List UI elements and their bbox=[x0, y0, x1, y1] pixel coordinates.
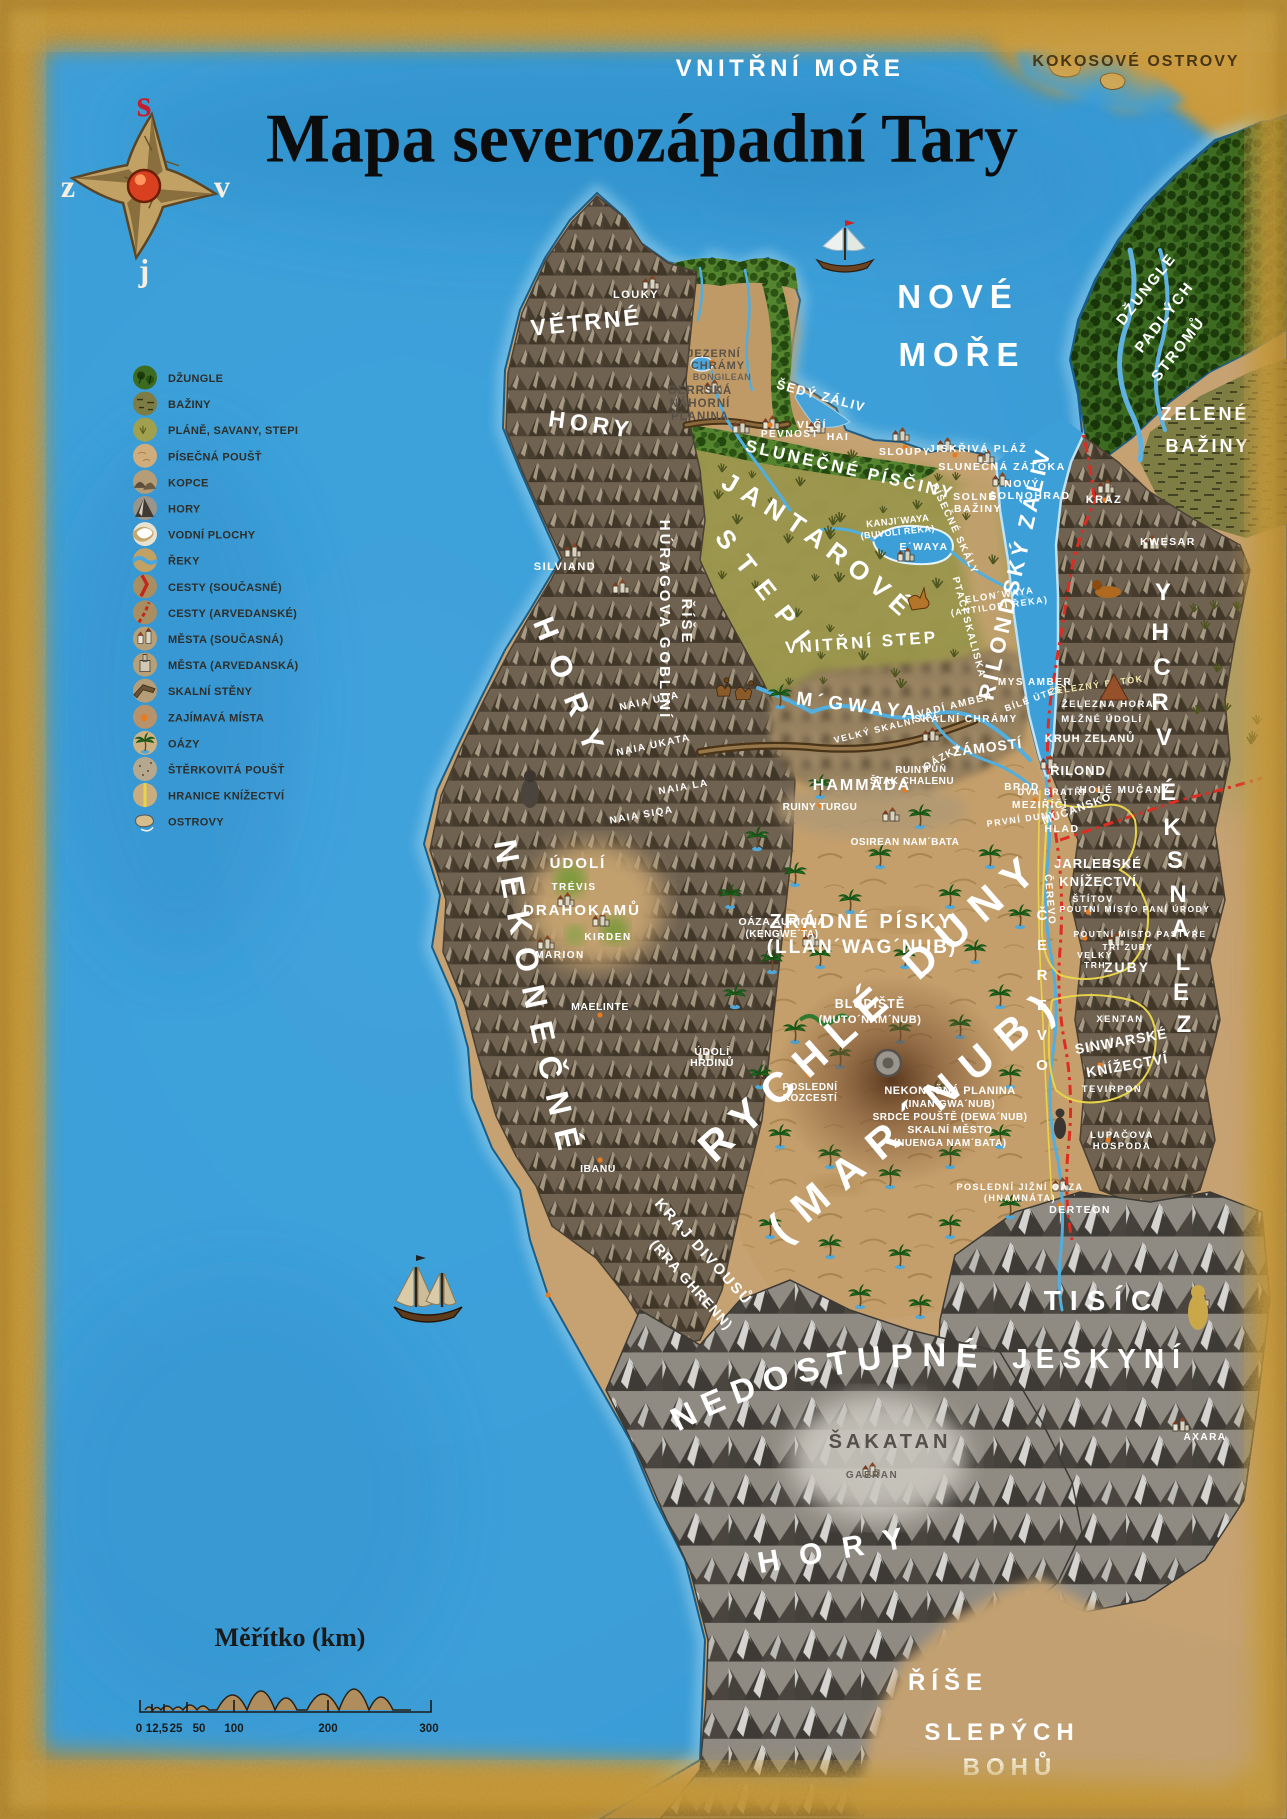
svg-text:ÚDOLÍ: ÚDOLÍ bbox=[550, 854, 607, 872]
svg-text:PEVNOST: PEVNOST bbox=[761, 429, 819, 440]
svg-text:ŘÍŠE: ŘÍŠE bbox=[678, 598, 696, 645]
svg-text:SLEPÝCH: SLEPÝCH bbox=[924, 1718, 1079, 1746]
svg-text:OÁZY: OÁZY bbox=[168, 737, 200, 750]
svg-text:ROZCESTÍ: ROZCESTÍ bbox=[783, 1091, 838, 1104]
svg-text:200: 200 bbox=[318, 1723, 337, 1735]
svg-text:R: R bbox=[1151, 689, 1168, 716]
svg-text:ŠAKATAN: ŠAKATAN bbox=[829, 1429, 952, 1453]
svg-text:POUTNÍ MÍSTO PANÍ ÚRODY: POUTNÍ MÍSTO PANÍ ÚRODY bbox=[1060, 903, 1211, 914]
svg-text:BAŽINY: BAŽINY bbox=[168, 398, 211, 411]
svg-text:Měřítko (km): Měřítko (km) bbox=[215, 1623, 366, 1652]
svg-text:JISKŘIVÁ PLÁŽ: JISKŘIVÁ PLÁŽ bbox=[929, 442, 1027, 455]
svg-text:E: E bbox=[1037, 997, 1047, 1014]
svg-text:É: É bbox=[1160, 778, 1176, 806]
svg-text:LUPAČOVA: LUPAČOVA bbox=[1090, 1129, 1154, 1141]
svg-text:SOLNOHRAD: SOLNOHRAD bbox=[989, 490, 1070, 502]
svg-text:ŘÍŠE: ŘÍŠE bbox=[908, 1668, 988, 1696]
svg-text:KRUH ZELANŮ: KRUH ZELANŮ bbox=[1045, 731, 1135, 745]
svg-text:KIRDEN: KIRDEN bbox=[584, 932, 631, 943]
svg-text:KNÍŽECTVÍ: KNÍŽECTVÍ bbox=[1059, 874, 1137, 889]
svg-text:300: 300 bbox=[419, 1723, 438, 1735]
svg-text:S: S bbox=[1167, 847, 1183, 874]
svg-text:R: R bbox=[1037, 967, 1048, 984]
svg-text:KWESAR: KWESAR bbox=[1140, 536, 1196, 548]
svg-text:HOLÉ MUČANY: HOLÉ MUČANY bbox=[1080, 783, 1171, 796]
svg-text:XENTAN: XENTAN bbox=[1096, 1014, 1143, 1025]
svg-text:NOVÉ: NOVÉ bbox=[897, 278, 1019, 315]
svg-text:TRÉVIS: TRÉVIS bbox=[551, 880, 596, 893]
svg-text:100: 100 bbox=[224, 1723, 243, 1735]
svg-text:A: A bbox=[1171, 915, 1188, 942]
svg-text:DERTEON: DERTEON bbox=[1049, 1204, 1111, 1216]
svg-text:BAŽINY: BAŽINY bbox=[954, 502, 1002, 515]
svg-text:(KENGWE´TA): (KENGWE´TA) bbox=[745, 929, 818, 940]
svg-text:OSTROVY: OSTROVY bbox=[168, 817, 224, 829]
svg-text:DRAHOKAMŮ: DRAHOKAMŮ bbox=[523, 900, 641, 919]
svg-text:Mapa severozápadní Tary: Mapa severozápadní Tary bbox=[266, 99, 1018, 177]
svg-text:JARLEBSKÉ: JARLEBSKÉ bbox=[1054, 856, 1142, 871]
svg-text:MAELINTE: MAELINTE bbox=[571, 1001, 629, 1013]
svg-text:PLANINA: PLANINA bbox=[671, 411, 729, 423]
svg-text:Y: Y bbox=[1155, 579, 1171, 606]
svg-text:MARION: MARION bbox=[535, 950, 585, 961]
svg-text:OÁZA AURIONA: OÁZA AURIONA bbox=[739, 915, 826, 928]
svg-text:NEKONEČNÁ PLANINA: NEKONEČNÁ PLANINA bbox=[884, 1084, 1015, 1097]
svg-text:z: z bbox=[61, 168, 75, 204]
svg-text:(MUTO´NAM´NUB): (MUTO´NAM´NUB) bbox=[819, 1014, 922, 1026]
svg-text:POSLEDNÍ: POSLEDNÍ bbox=[782, 1080, 837, 1093]
svg-text:L: L bbox=[1176, 949, 1191, 976]
svg-text:s: s bbox=[137, 83, 152, 125]
svg-text:LOUKY: LOUKY bbox=[613, 289, 659, 301]
svg-text:ZELENÉ: ZELENÉ bbox=[1160, 403, 1249, 424]
svg-text:IBANU: IBANU bbox=[580, 1163, 616, 1175]
svg-text:AXARA: AXARA bbox=[1183, 1432, 1226, 1443]
svg-text:HRANICE KNÍŽECTVÍ: HRANICE KNÍŽECTVÍ bbox=[168, 790, 285, 803]
svg-text:SLOUPY: SLOUPY bbox=[879, 446, 931, 458]
svg-text:ZAJÍMAVÁ MÍSTA: ZAJÍMAVÁ MÍSTA bbox=[168, 711, 264, 724]
svg-text:ŠTĚRKOVITÁ POUŠŤ: ŠTĚRKOVITÁ POUŠŤ bbox=[168, 764, 285, 777]
svg-text:MĚSTA (ARVEDANSKÁ): MĚSTA (ARVEDANSKÁ) bbox=[168, 659, 299, 672]
svg-text:E: E bbox=[1173, 979, 1189, 1006]
svg-text:HÚRAGOVA GOBLINÍ: HÚRAGOVA GOBLINÍ bbox=[656, 520, 674, 721]
svg-text:v: v bbox=[214, 168, 230, 204]
svg-text:ŠTAK CHALENU: ŠTAK CHALENU bbox=[870, 774, 954, 787]
svg-text:TRH: TRH bbox=[1084, 960, 1106, 970]
svg-text:HLAD: HLAD bbox=[1044, 823, 1079, 835]
svg-text:BLUDIŠTĚ: BLUDIŠTĚ bbox=[835, 996, 906, 1011]
svg-text:SKALNÍ STĚNY: SKALNÍ STĚNY bbox=[168, 685, 253, 698]
svg-text:BONGILEAN: BONGILEAN bbox=[693, 372, 752, 382]
svg-text:(HNAMNÁTA): (HNAMNÁTA) bbox=[984, 1193, 1056, 1203]
svg-text:HAI: HAI bbox=[827, 431, 850, 443]
svg-text:RUINY TURGU: RUINY TURGU bbox=[783, 802, 858, 813]
svg-text:BAŽINY: BAŽINY bbox=[1166, 435, 1251, 456]
svg-text:CESTY (ARVEDANSKÉ): CESTY (ARVEDANSKÉ) bbox=[168, 607, 297, 620]
svg-text:V: V bbox=[1156, 724, 1172, 751]
svg-text:VNITŘNÍ MOŘE: VNITŘNÍ MOŘE bbox=[676, 54, 905, 82]
svg-text:HOSPODA: HOSPODA bbox=[1093, 1141, 1152, 1152]
svg-text:Č: Č bbox=[1037, 906, 1048, 924]
svg-text:MLŽNÉ ÚDOLÍ: MLŽNÉ ÚDOLÍ bbox=[1061, 713, 1142, 725]
svg-text:12,5: 12,5 bbox=[146, 1723, 169, 1735]
svg-text:N: N bbox=[1169, 881, 1186, 908]
svg-text:j: j bbox=[138, 252, 150, 288]
svg-text:NÁHORNÍ: NÁHORNÍ bbox=[670, 397, 731, 410]
svg-text:SLUNEČNÁ ZÁTOKA: SLUNEČNÁ ZÁTOKA bbox=[938, 460, 1065, 473]
svg-text:SRDCE POUŠTĚ (DEWA´NUB): SRDCE POUŠTĚ (DEWA´NUB) bbox=[873, 1110, 1028, 1123]
svg-text:TUŇ: TUŇ bbox=[925, 763, 948, 774]
svg-text:MĚSTA (SOUČASNÁ): MĚSTA (SOUČASNÁ) bbox=[168, 633, 283, 646]
svg-text:JEZERNÍ: JEZERNÍ bbox=[687, 347, 740, 360]
svg-text:E´WAYA: E´WAYA bbox=[899, 541, 948, 553]
svg-text:MOŘE: MOŘE bbox=[899, 336, 1026, 373]
svg-text:DŽUNGLE: DŽUNGLE bbox=[168, 372, 223, 385]
svg-text:PLÁNĚ, SAVANY, STEPI: PLÁNĚ, SAVANY, STEPI bbox=[168, 424, 298, 437]
svg-text:CHRÁMY: CHRÁMY bbox=[691, 359, 745, 372]
svg-text:OSIREAN NAM´BATA: OSIREAN NAM´BATA bbox=[851, 837, 960, 848]
svg-text:CESTY (SOUČASNÉ): CESTY (SOUČASNÉ) bbox=[168, 581, 282, 594]
svg-text:ZUBY: ZUBY bbox=[1104, 959, 1150, 975]
svg-text:O: O bbox=[1036, 1057, 1048, 1074]
svg-text:NOVÝ: NOVÝ bbox=[1004, 477, 1040, 490]
svg-text:V: V bbox=[1037, 1027, 1047, 1044]
svg-text:POSLEDNÍ JIŽNÍ OÁZA: POSLEDNÍ JIŽNÍ OÁZA bbox=[956, 1181, 1083, 1192]
svg-text:JESKYNÍ: JESKYNÍ bbox=[1012, 1343, 1188, 1374]
svg-text:Z: Z bbox=[1177, 1011, 1192, 1038]
svg-text:ŠTÍTOV: ŠTÍTOV bbox=[1072, 893, 1113, 904]
svg-text:E: E bbox=[1037, 937, 1047, 954]
svg-text:ŘEKY: ŘEKY bbox=[168, 555, 200, 568]
svg-text:H: H bbox=[1151, 619, 1168, 646]
svg-text:SILVIAND: SILVIAND bbox=[534, 561, 597, 573]
svg-text:C: C bbox=[1153, 654, 1170, 681]
svg-text:PÍSEČNÁ POUŠŤ: PÍSEČNÁ POUŠŤ bbox=[168, 450, 262, 463]
svg-text:KOPCE: KOPCE bbox=[168, 477, 209, 489]
svg-text:SKALNÍ MĚSTO: SKALNÍ MĚSTO bbox=[907, 1123, 992, 1136]
svg-text:DVA BRATŘI: DVA BRATŘI bbox=[1018, 786, 1087, 797]
svg-text:GAERAN: GAERAN bbox=[846, 1470, 898, 1481]
svg-text:HRDINŮ: HRDINŮ bbox=[690, 1055, 734, 1069]
svg-text:HORY: HORY bbox=[168, 504, 201, 516]
svg-text:TISÍC: TISÍC bbox=[1044, 1285, 1161, 1316]
svg-text:KOKOSOVÉ OSTROVY: KOKOSOVÉ OSTROVY bbox=[1032, 51, 1239, 70]
svg-text:KRAZ: KRAZ bbox=[1086, 494, 1123, 506]
svg-text:VODNÍ PLOCHY: VODNÍ PLOCHY bbox=[168, 529, 256, 542]
svg-text:0: 0 bbox=[136, 1723, 142, 1735]
svg-text:SOLNÉ: SOLNÉ bbox=[953, 490, 997, 503]
svg-text:RILOND: RILOND bbox=[1050, 763, 1106, 778]
svg-text:K: K bbox=[1163, 814, 1181, 841]
svg-text:(INAN´GWA´NUB): (INAN´GWA´NUB) bbox=[905, 1099, 995, 1110]
svg-text:25: 25 bbox=[170, 1723, 183, 1735]
svg-text:50: 50 bbox=[193, 1723, 206, 1735]
svg-text:(LLAN´WAG´NUB): (LLAN´WAG´NUB) bbox=[767, 937, 958, 958]
svg-text:TEVIRPON: TEVIRPON bbox=[1082, 1084, 1143, 1095]
svg-text:(NUENGA NAM´BATA): (NUENGA NAM´BATA) bbox=[893, 1138, 1006, 1149]
svg-text:GERRSKÁ: GERRSKÁ bbox=[668, 384, 733, 397]
